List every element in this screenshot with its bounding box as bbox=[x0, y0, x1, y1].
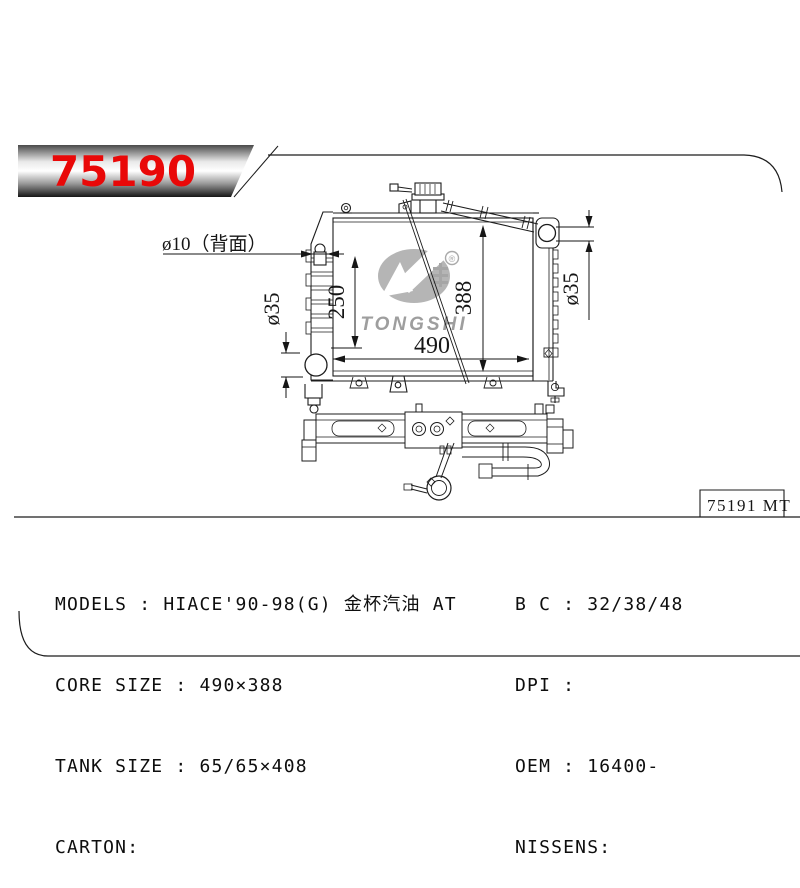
dim-388-label: 388 bbox=[451, 281, 476, 316]
spec-carton-line: CARTON: bbox=[55, 834, 457, 861]
spec-bc-line: B C : 32/38/48 bbox=[515, 591, 684, 618]
registered-mark: ® bbox=[449, 254, 456, 264]
dim-490-label: 490 bbox=[414, 333, 450, 359]
spec-core-size-line: CORE SIZE : 490×388 bbox=[55, 672, 457, 699]
dim-inlet-d35-label: ø35 bbox=[558, 273, 583, 306]
bottom-view-center-plate bbox=[405, 412, 462, 454]
outlet-pipe bbox=[305, 354, 327, 376]
bottom-clips bbox=[350, 377, 502, 388]
ref-label-box: 75191 MT bbox=[700, 490, 791, 517]
spec-column-right: B C : 32/38/48 DPI : OEM : 16400- NISSEN… bbox=[515, 537, 684, 888]
spec-oem-line: OEM : 16400- bbox=[515, 753, 684, 780]
radiator-bottom-view bbox=[302, 404, 573, 500]
spec-tank-size-line: TANK SIZE : 65/65×408 bbox=[55, 753, 457, 780]
filler-cap-assembly bbox=[390, 183, 444, 213]
dimension-annotations: ø10（背面） 250 388 490 ø35 ø35 bbox=[162, 210, 594, 398]
spec-models-line: MODELS : HIACE'90-98(G) 金杯汽油 AT bbox=[55, 591, 457, 618]
spec-column-left: MODELS : HIACE'90-98(G) 金杯汽油 AT CORE SIZ… bbox=[55, 537, 457, 888]
bottom-view-clamp bbox=[404, 443, 454, 500]
spec-nissens-line: NISSENS: bbox=[515, 834, 684, 861]
part-number-banner: 75190 bbox=[18, 145, 278, 197]
dim-250-label: 250 bbox=[324, 285, 349, 320]
right-tank bbox=[533, 213, 564, 403]
part-number-text: 75190 bbox=[50, 147, 196, 196]
dim-rear-hole-label: ø10（背面） bbox=[162, 233, 267, 255]
inlet-pipe bbox=[539, 225, 556, 242]
card-top-border bbox=[268, 155, 782, 192]
mount-tab bbox=[390, 376, 407, 392]
ref-label-text: 75191 MT bbox=[707, 496, 791, 515]
top-hook bbox=[340, 204, 352, 214]
dim-outlet-d35-label: ø35 bbox=[259, 293, 284, 326]
upper-hose bbox=[441, 200, 538, 232]
spec-dpi-line: DPI : bbox=[515, 672, 684, 699]
bottom-view-hose bbox=[462, 443, 550, 480]
